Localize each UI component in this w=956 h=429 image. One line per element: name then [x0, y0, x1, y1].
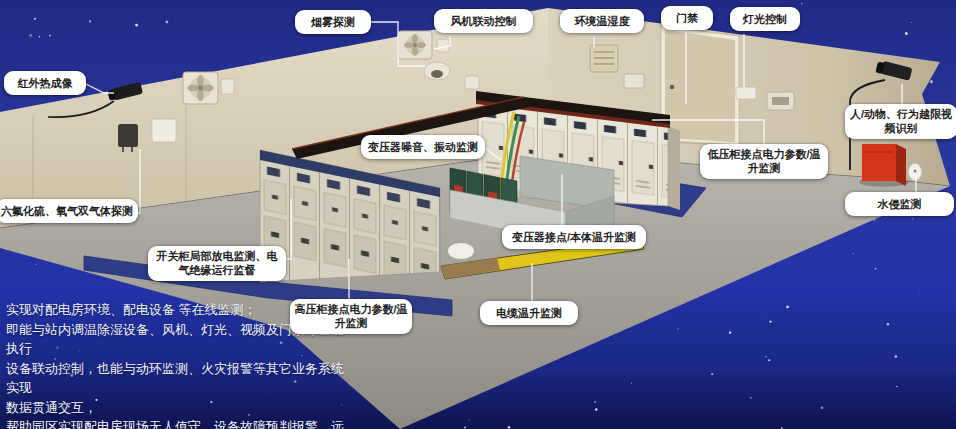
callout-lighting-control: 灯光控制	[730, 7, 800, 31]
distribution-wallbox	[767, 92, 794, 110]
description-line: 设备联动控制，也能与动环监测、火灾报警等其它业务系统实现	[6, 359, 346, 398]
callout-cable-temp-rise: 电缆温升监测	[480, 301, 578, 325]
wall-small-box	[465, 76, 479, 89]
temp-humidity-sensor	[590, 45, 618, 72]
wall-small-box	[437, 39, 449, 52]
callout-video-boundary-recognition: 人/动物、行为越限视频识别	[845, 104, 956, 139]
callout-hv-cabinet-monitoring: 高压柜接点电力参数/温升监测	[290, 299, 412, 334]
light-switch	[736, 87, 756, 99]
callout-lv-cabinet-monitoring: 低压柜接点电力参数/温升监测	[700, 144, 828, 179]
wall-fan-center	[398, 31, 432, 59]
water-sensor	[909, 164, 922, 181]
fire-extinguisher-box	[862, 144, 906, 186]
callout-water-intrusion-monitoring: 水侵监测	[845, 192, 954, 216]
smoke-dome-detector	[424, 62, 450, 80]
description-line: 帮助园区实现配电房现场无人值守、设备故障预判报警，远程诊	[6, 417, 346, 429]
callout-switchgear-partial-discharge: 开关柜局部放电监测、电气绝缘运行监督	[148, 246, 286, 281]
callout-door-access-control: 门禁	[661, 6, 713, 30]
callout-env-temp-humidity: 环境温湿度	[560, 9, 644, 33]
access-door	[665, 30, 735, 142]
door-handle-icon	[670, 85, 675, 90]
callout-sf6-oxygen-gas-detection: 六氟化硫、氧气双气体探测	[0, 199, 138, 223]
wall-fan-left	[183, 72, 218, 104]
floor-light-spot	[448, 243, 474, 259]
callout-transformer-noise-vibration: 变压器噪音、振动监测	[361, 135, 485, 159]
callout-transformer-contact-temp: 变压器接点/本体温升监测	[502, 225, 646, 249]
wall-small-box	[221, 79, 234, 94]
callout-fan-linkage-control: 风机联动控制	[434, 9, 533, 33]
scene-canvas: 红外热成像 六氟化硫、氧气双气体探测 烟雾探测 风机联动控制 环境温湿度 门禁 …	[0, 0, 956, 429]
wall-meter-box	[624, 74, 644, 88]
wall-white-box	[152, 119, 176, 142]
callout-smoke-detection: 烟雾探测	[295, 10, 371, 34]
callout-infrared-thermal-imaging: 红外热成像	[4, 71, 86, 95]
description-line: 数据贯通交互，	[6, 398, 346, 418]
